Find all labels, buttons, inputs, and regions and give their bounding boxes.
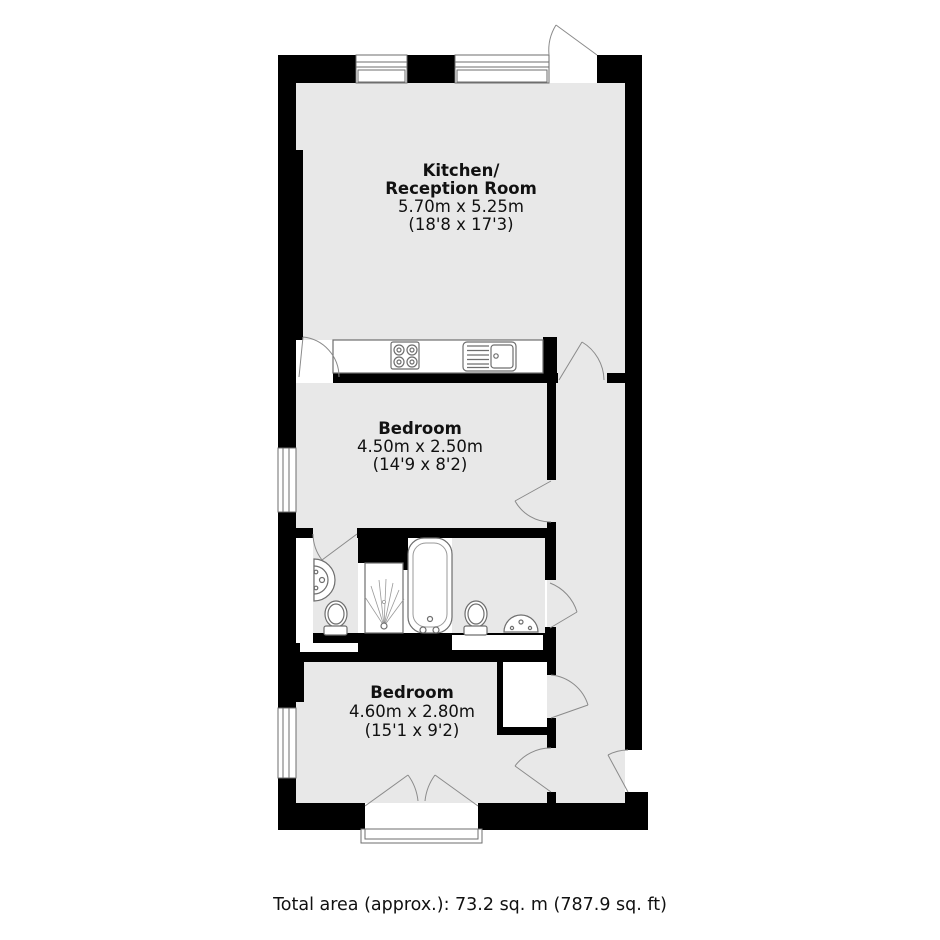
kitchen-dims-imperial: (18'8 x 17'3) <box>408 215 513 234</box>
wall-kitchen-bedroom1 <box>333 373 558 383</box>
total-area-text: Total area (approx.): 73.2 sq. m (787.9 … <box>272 895 667 915</box>
hob-icon <box>391 342 419 369</box>
bedroom1-dims-metric: 4.50m x 2.50m <box>357 437 483 456</box>
window-top-1 <box>356 55 407 83</box>
wall-bedroom2-nib <box>296 662 304 702</box>
wall-cavity-strip <box>300 643 358 652</box>
opening-bathroom-hallway <box>547 580 556 627</box>
wall-bedroom1-bath-left <box>278 528 313 538</box>
wall-bedroom2-hall-stub <box>547 792 556 803</box>
opening-bedroom1-wc <box>313 528 357 538</box>
vanity-strip <box>452 635 543 650</box>
entrance-door-opening <box>625 750 642 792</box>
kitchen-name-line2: Reception Room <box>385 179 537 198</box>
door-opening-kitchen-bedroom1 <box>296 340 333 383</box>
balcony-step <box>361 829 482 843</box>
wall-right <box>625 55 642 750</box>
shower-icon <box>365 563 404 633</box>
wall-closet-left <box>497 662 503 735</box>
door-opening-top <box>549 55 597 83</box>
window-bedroom2 <box>278 708 296 778</box>
opening-kitchen-hallway <box>558 373 607 383</box>
wall-bottom-2 <box>478 803 648 830</box>
bedroom1-dims-imperial: (14'9 x 8'2) <box>373 455 468 474</box>
opening-closet-hallway <box>547 675 556 718</box>
floorplan-drawing: Kitchen/ Reception Room 5.70m x 5.25m (1… <box>0 0 940 940</box>
french-door-opening <box>365 803 478 830</box>
bathtub-icon <box>408 538 452 633</box>
toilet-icon <box>464 601 487 635</box>
bedroom2-dims-metric: 4.60m x 2.80m <box>349 702 475 721</box>
hallway-floor <box>556 383 627 803</box>
bedroom2-name: Bedroom <box>370 683 454 702</box>
wall-closet-hall-upper <box>547 662 556 675</box>
wall-top-1 <box>278 55 356 83</box>
wall-kitchen-nib <box>296 150 303 340</box>
wall-bedroom1-hall-upper <box>547 383 556 480</box>
wall-bottom-1 <box>278 803 365 830</box>
wall-top-2 <box>407 55 455 83</box>
toilet-icon <box>324 601 347 635</box>
wall-bedroom1-hall-lower <box>547 522 556 528</box>
floorplan-page: Kitchen/ Reception Room 5.70m x 5.25m (1… <box>0 0 940 940</box>
bedroom1-name: Bedroom <box>378 419 462 438</box>
wall-tub-strip <box>403 528 408 570</box>
bedroom2-dims-imperial: (15'1 x 9'2) <box>365 721 460 740</box>
opening-bedroom2-hallway <box>547 748 556 792</box>
opening-bedroom1-hallway <box>547 480 556 522</box>
kitchen-dims-metric: 5.70m x 5.25m <box>398 197 524 216</box>
wall-kitchen-hallway <box>607 373 628 383</box>
closet-interior <box>503 662 547 727</box>
kitchen-name-line1: Kitchen/ <box>423 161 501 180</box>
wall-bath-hall-upper <box>545 528 556 580</box>
sink-icon <box>463 342 516 371</box>
service-duct <box>296 538 313 643</box>
wall-shower-block <box>358 528 403 563</box>
window-bedroom1 <box>278 448 296 512</box>
window-top-2 <box>455 55 549 83</box>
wall-closet-hall-lower <box>547 718 556 748</box>
